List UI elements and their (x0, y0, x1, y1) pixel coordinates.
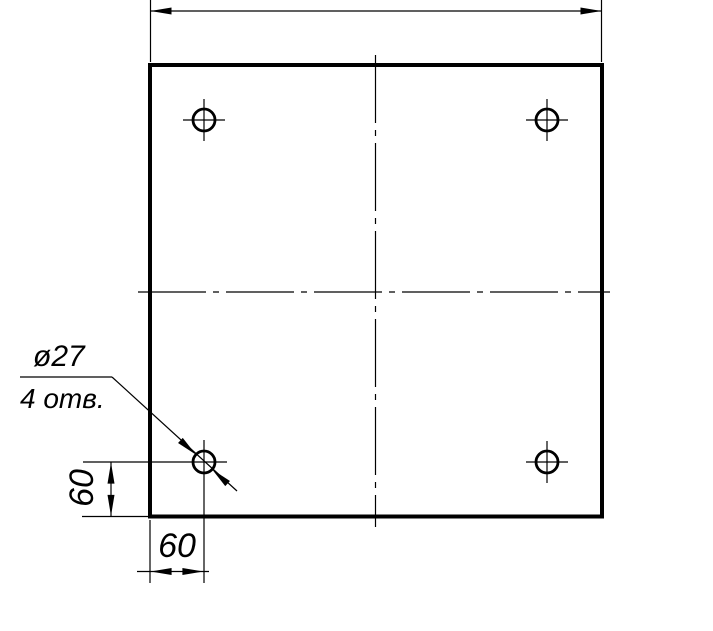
vertical-dim-label: 60 (63, 469, 101, 507)
callout-diameter-label: ø27 (33, 340, 86, 373)
top-dimension (151, 0, 602, 62)
hole-top-right (526, 99, 568, 141)
hole-bottom-right (526, 441, 568, 483)
horizontal-dimension: 60 (137, 520, 209, 583)
callout-count-label: 4 отв. (20, 383, 105, 414)
arrowhead-left-icon (151, 8, 172, 15)
engineering-drawing: ø27 4 отв. 60 60 (0, 0, 713, 631)
arrowhead-down-icon (108, 495, 115, 516)
horizontal-dim-label: 60 (158, 527, 196, 565)
arrowhead-left-icon (151, 568, 172, 575)
arrowhead-up-icon (108, 463, 115, 484)
hole-top-left (183, 99, 225, 141)
vertical-dimension: 60 (63, 462, 150, 517)
arrowhead-right-icon (182, 568, 203, 575)
arrowhead-right-icon (581, 8, 602, 15)
